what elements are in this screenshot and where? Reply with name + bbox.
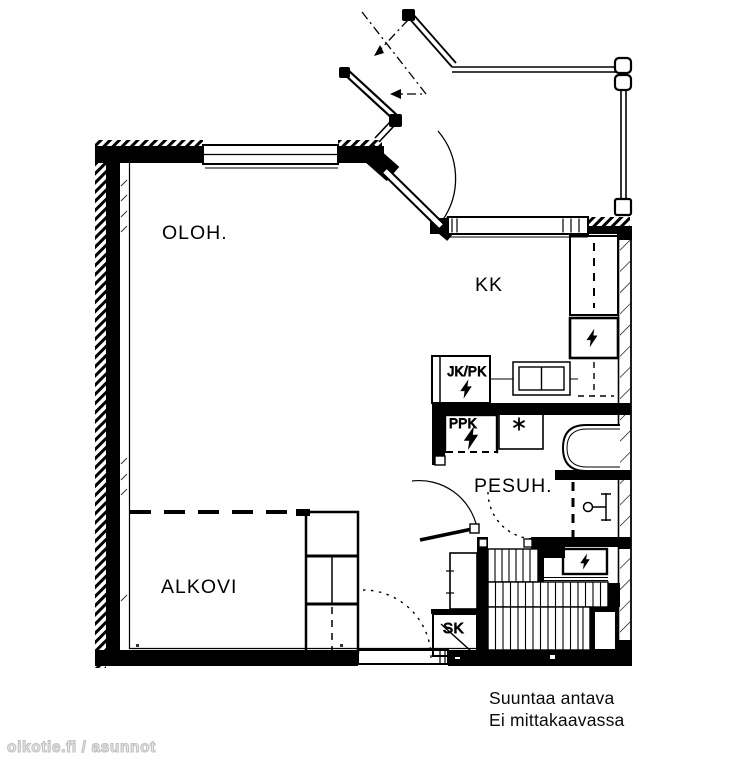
disclaimer-line1: Suuntaa antava (489, 687, 624, 709)
stair-flight-2 (488, 582, 608, 607)
washing-machine: PPK (445, 415, 497, 452)
site-watermark: oikotie.fi / asunnot (7, 739, 156, 757)
kitchenette-label: KK (475, 274, 503, 296)
kk-wall-hatch (588, 217, 630, 226)
living-room-label: OLOH. (162, 222, 228, 244)
wall-junction-1 (618, 403, 631, 415)
railing-post (615, 58, 631, 73)
tub-nook-wall (555, 470, 618, 480)
stair-electrical-box (563, 549, 607, 574)
top-wall-hatch-right (338, 140, 382, 146)
entry-door (385, 131, 456, 226)
entry-direction-arrow (362, 12, 426, 99)
railing-post (615, 75, 631, 90)
screen-post (389, 114, 402, 127)
door-jamb (524, 539, 532, 547)
cleaning-closet: SK (431, 553, 477, 656)
disclaimer-note: Suuntaa antava Ei mittakaavassa (489, 687, 624, 731)
shower-fitting-icon (584, 493, 612, 521)
kitchenette: JK/PK (432, 236, 618, 415)
lightning-bolt-icon (586, 329, 597, 347)
left-wall (106, 146, 120, 664)
inner-door-swing-dashed (488, 492, 535, 539)
fridge-freezer-unit: JK/PK (432, 356, 490, 403)
alcove-closet (306, 512, 358, 652)
stair-divider (538, 549, 544, 582)
washroom-bottom-wall (565, 537, 620, 547)
staircase (477, 549, 620, 658)
floorplan-drawing: JK/PK PPK (0, 0, 739, 680)
sk-label: SK (443, 620, 464, 637)
stair-landing (594, 611, 616, 650)
stair-flight-1 (488, 549, 538, 582)
washroom-label: PESUH. (474, 475, 553, 497)
stair-flight-3 (488, 607, 590, 650)
kitchen-sink (513, 362, 570, 395)
fridge-freezer-label: JK/PK (447, 364, 486, 379)
left-wall-hatch (95, 140, 106, 668)
washroom-door (412, 456, 479, 540)
lightning-bolt-icon (580, 554, 590, 570)
bottom-wall-right (448, 650, 632, 666)
lightning-bolt-icon (460, 379, 472, 398)
door-jamb (479, 539, 487, 547)
right-wall-ticks (620, 235, 630, 647)
top-wall-left (95, 146, 203, 163)
alcove-label: ALKOVI (161, 576, 237, 598)
screen-cap (402, 9, 415, 21)
shower-drain-box (499, 413, 543, 449)
stair-left-wall (477, 549, 488, 658)
top-wall-hatch-left (95, 140, 203, 146)
entry-door-swing-arc (438, 131, 456, 221)
balcony (339, 9, 631, 215)
disclaimer-line2: Ei mittakaavassa (489, 709, 624, 731)
door-jamb (470, 524, 479, 533)
railing-post (615, 199, 631, 215)
asterisk-icon (513, 418, 524, 431)
stair-right-wall (608, 583, 620, 607)
dim-mark (550, 655, 555, 659)
bathtub (563, 425, 620, 471)
entry-door-leaf (385, 171, 441, 226)
hall-cabinet (450, 553, 477, 609)
window-kitchen (448, 217, 588, 237)
terrace-door-swing-dashed (363, 590, 431, 658)
floorplan-page: JK/PK PPK (0, 0, 739, 769)
se-corner (617, 640, 632, 654)
screen-cap (339, 67, 350, 78)
door-jamb (435, 456, 445, 465)
window-living-top (203, 145, 338, 168)
